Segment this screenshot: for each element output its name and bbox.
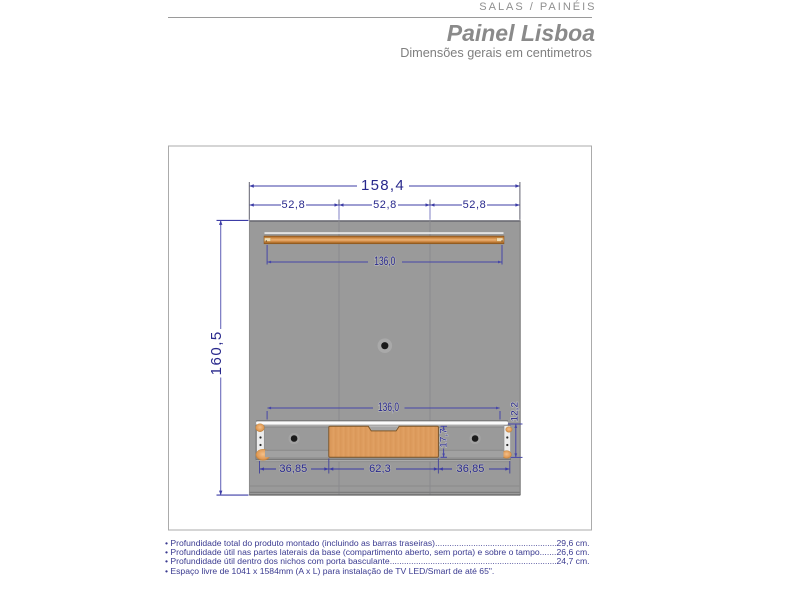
svg-text:160,5: 160,5	[208, 330, 225, 375]
svg-text:52,8: 52,8	[373, 199, 397, 211]
svg-text:36,85: 36,85	[456, 463, 484, 475]
svg-text:12,2: 12,2	[509, 402, 520, 422]
svg-text:52,8: 52,8	[281, 199, 305, 211]
svg-text:36,85: 36,85	[279, 463, 307, 475]
svg-text:62,3: 62,3	[369, 463, 391, 475]
svg-text:158,4: 158,4	[361, 177, 405, 194]
svg-text:52,8: 52,8	[463, 199, 487, 211]
svg-text:136,0: 136,0	[378, 400, 399, 414]
svg-text:136,0: 136,0	[374, 254, 395, 268]
svg-text:17,7: 17,7	[439, 428, 450, 448]
